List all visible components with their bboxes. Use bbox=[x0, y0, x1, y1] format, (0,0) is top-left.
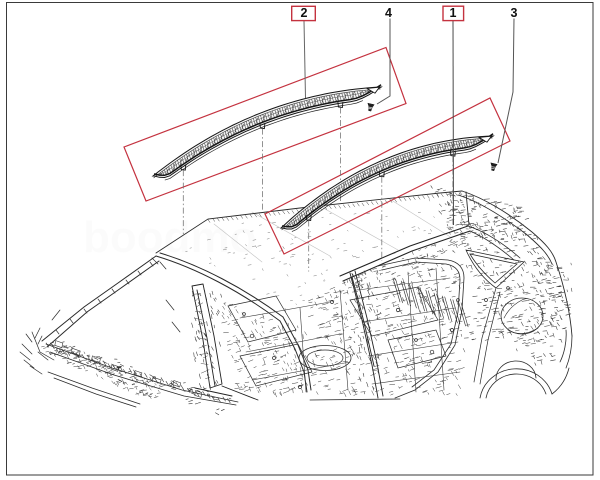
svg-text:boodmo: boodmo bbox=[83, 213, 257, 262]
svg-text:1: 1 bbox=[450, 6, 457, 20]
svg-text:2: 2 bbox=[301, 6, 308, 20]
svg-text:4: 4 bbox=[385, 6, 392, 20]
svg-text:3: 3 bbox=[511, 6, 518, 20]
